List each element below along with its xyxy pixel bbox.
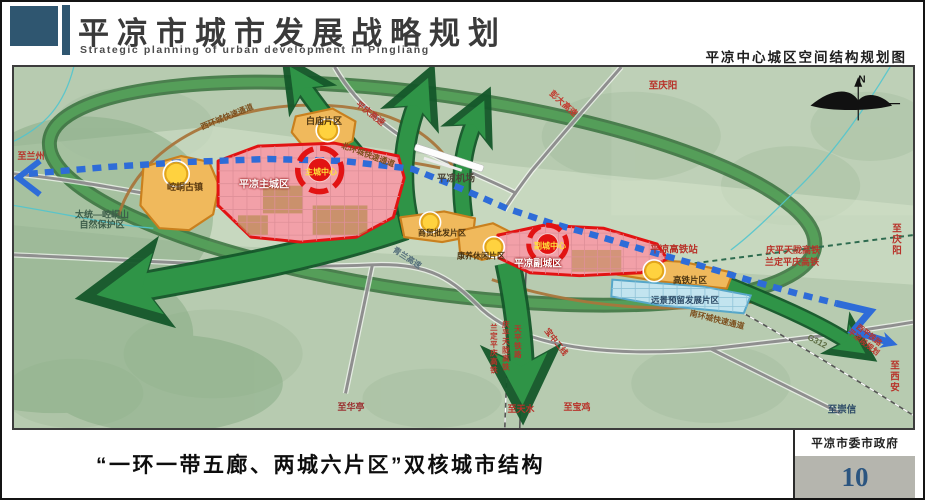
org-page-box: 平凉市委市政府 10: [793, 430, 915, 499]
page-number: 10: [795, 456, 915, 499]
map-canvas: [14, 67, 913, 428]
header-accent-square: [10, 6, 58, 46]
page-title-english: Strategic planning of urban development …: [80, 44, 430, 56]
header-accent-bar: [62, 5, 70, 55]
map-subtitle: 平凉中心城区空间结构规划图: [706, 46, 908, 66]
org-label: 平凉市委市政府: [795, 430, 915, 456]
slide-caption: “一环一带五廊、两城六片区”双核城市结构: [14, 432, 789, 496]
slide-page: 平凉市城市发展战略规划 Strategic planning of urban …: [0, 0, 925, 500]
map-frame: 至兰州太统—崆峒山 自然保护区崆峒古镇平凉主城区主城中心白庙片区西环城快速通道北…: [12, 65, 915, 430]
